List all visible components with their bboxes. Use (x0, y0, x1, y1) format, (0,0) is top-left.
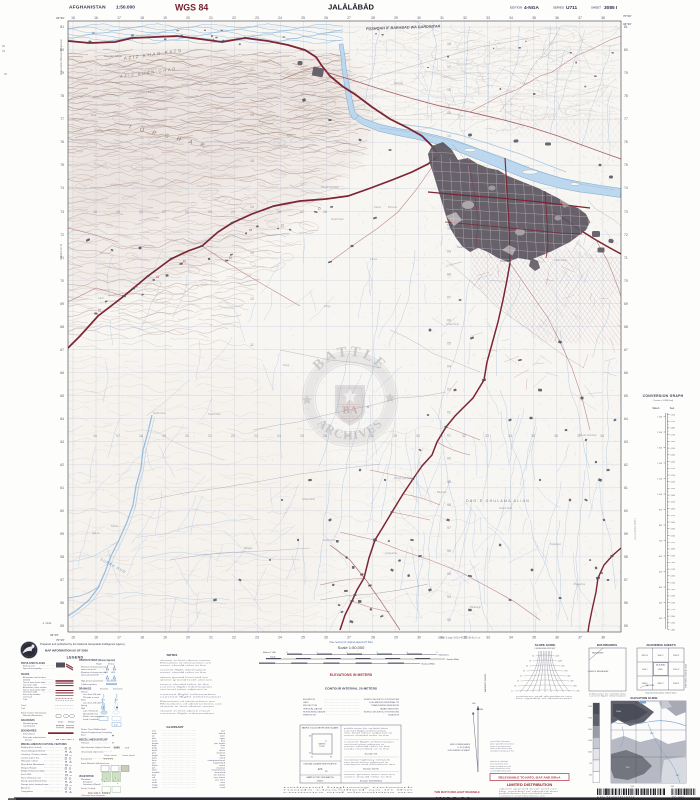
svg-text:CONTOUR INTERVAL 20 METERS: CONTOUR INTERVAL 20 METERS (325, 687, 377, 691)
svg-text:Kama: Kama (111, 524, 118, 528)
svg-text:Stream Disappearing; Dissipati: Stream Disappearing; Dissipating (81, 731, 113, 734)
svg-text:Single: Single (58, 722, 63, 724)
svg-text:65: 65 (309, 753, 311, 755)
svg-text:Kilometers: Kilometers (439, 653, 450, 656)
svg-text:1 400: 1 400 (657, 432, 662, 434)
svg-text:OBSTRUCTIONS (Above Approx): OBSTRUCTIONS (Above Approx) (79, 659, 115, 662)
svg-text:POINT: POINT (319, 746, 325, 748)
svg-text:19: 19 (163, 636, 167, 640)
svg-text:17: 17 (116, 434, 120, 438)
svg-text:25ft wide or more: 25ft wide or more (83, 696, 100, 699)
svg-text:55: 55 (624, 624, 628, 628)
svg-text:GRID: GRID (303, 702, 309, 704)
svg-text:WGS 84: WGS 84 (175, 3, 208, 13)
svg-text:1646: 1646 (616, 711, 622, 713)
svg-text:68: 68 (60, 325, 64, 329)
svg-text:4,500: 4,500 (671, 448, 676, 450)
svg-text:Escarpment: Escarpment (81, 757, 93, 760)
svg-text:Ghani Khel: Ghani Khel (499, 506, 512, 510)
svg-text:80: 80 (624, 48, 628, 52)
svg-text:Flume; Tana; Wildfowl field: Flume; Tana; Wildfowl field (81, 729, 107, 731)
svg-text:1,900: 1,900 (671, 623, 676, 625)
svg-text:ROADS: ROADS (21, 673, 30, 676)
svg-text:4,400: 4,400 (671, 455, 676, 457)
svg-text:Behsud: Behsud (388, 205, 397, 209)
svg-text:1,000 METER UNIVERSAL TR: 1,000 METER UNIVERSAL TR (369, 701, 400, 704)
svg-text:4,000: 4,000 (671, 482, 676, 484)
svg-text:32: 32 (462, 434, 466, 438)
svg-text:Qal eh: Qal eh (92, 531, 100, 535)
svg-text:Sand: Mounds; Stabilized area: Sand: Mounds; Stabilized area (81, 762, 110, 765)
svg-text:2,100: 2,100 (671, 609, 676, 611)
svg-text:First order administrative: First order administrative (23, 736, 47, 739)
svg-text:Tangi: Tangi (283, 363, 290, 367)
svg-text:BOUNDARIES: BOUNDARIES (597, 643, 617, 647)
svg-text:SHEET: SHEET (591, 6, 601, 10)
svg-text:3,000: 3,000 (671, 549, 676, 551)
svg-text:Kariz: Kariz (98, 296, 105, 300)
svg-text:65: 65 (624, 394, 628, 398)
svg-text:38: 38 (600, 434, 604, 438)
svg-text:99: 99 (447, 480, 451, 484)
svg-text:225: 225 (102, 700, 105, 702)
svg-text:37: 37 (578, 636, 582, 640)
svg-text:Fort & Wall: Fort & Wall (21, 773, 32, 776)
svg-text:23: 23 (254, 434, 258, 438)
svg-text:3,700: 3,700 (671, 502, 676, 504)
svg-text:23: 23 (208, 210, 212, 214)
svg-text:24: 24 (277, 434, 281, 438)
svg-text:Nonreliable; Dry: Nonreliable; Dry (83, 712, 99, 715)
svg-text:above ground level and are: above ground level and are (160, 678, 214, 681)
svg-text:MISCELLANEOUS CULTURAL FEATURE: MISCELLANEOUS CULTURAL FEATURES (21, 743, 67, 746)
svg-text:PRINTED BY: PRINTED BY (303, 715, 317, 717)
svg-text:68: 68 (624, 325, 628, 329)
svg-text:BA: BA (342, 405, 357, 417)
svg-text:25: 25 (517, 681, 519, 683)
svg-text:Prepared and published by the: Prepared and published by the National G… (40, 642, 126, 646)
svg-text:29: 29 (394, 636, 398, 640)
svg-text:Tubular pipelines: Tubular pipelines (81, 683, 97, 686)
svg-text:Stream: Stream (81, 690, 88, 693)
svg-text:(See reverse for original aspe: (See reverse for original aspects AT Sit… (329, 641, 373, 644)
svg-text:SAMPLE POINT DESIGNATION: SAMPLE POINT DESIGNATION (306, 776, 334, 779)
svg-text:38: 38 (601, 636, 605, 640)
svg-text:Khush Gunbad: Khush Gunbad (394, 476, 412, 480)
svg-text:Deciduous (Mixed): Deciduous (Mixed) (83, 784, 101, 786)
svg-text:Behsud: Behsud (394, 81, 403, 85)
svg-text:32: 32 (520, 676, 522, 678)
svg-text:Ruins; Historical ruins: Ruins; Historical ruins (21, 776, 41, 779)
svg-text:Storage tanks; landmark area: Storage tanks; landmark area (21, 783, 49, 786)
svg-text:17: 17 (447, 65, 451, 69)
svg-text:23: 23 (255, 636, 259, 640)
svg-text:shown in feet above mean: shown in feet above mean (160, 705, 216, 708)
svg-text:Example: 42SXD926655: Example: 42SXD926655 (360, 781, 383, 783)
svg-text:4,600: 4,600 (671, 441, 676, 443)
svg-text:TRANSVERSE MERCATOR: TRANSVERSE MERCATOR (371, 704, 399, 707)
svg-text:Kariz: Kariz (114, 725, 118, 727)
svg-text:Scrub; Orchard: Scrub; Orchard (81, 787, 96, 790)
svg-text:1 300: 1 300 (657, 447, 662, 449)
svg-text:2: 2 (347, 652, 348, 654)
svg-text:37: 37 (578, 16, 582, 20)
svg-text:38: 38 (601, 16, 605, 20)
svg-text:76: 76 (60, 140, 64, 144)
svg-text:26: 26 (277, 210, 281, 214)
svg-text:15: 15 (447, 111, 451, 115)
svg-text:(1 meter = 3.2808 feet): (1 meter = 3.2808 feet) (653, 399, 674, 402)
svg-text:(465): (465) (111, 672, 116, 674)
svg-text:4,100: 4,100 (671, 475, 676, 477)
svg-text:4,300: 4,300 (671, 461, 676, 463)
svg-text:70: 70 (624, 279, 628, 283)
svg-text:Bagrami: Bagrami (437, 490, 447, 494)
svg-text:62: 62 (624, 463, 628, 467)
svg-text:11: 11 (447, 203, 451, 207)
svg-text:Surkh Dew: Surkh Dew (554, 258, 567, 262)
svg-text:500: 500 (659, 571, 662, 573)
svg-text:Height: Height (96, 662, 102, 665)
svg-text:106%: 106% (558, 661, 563, 663)
svg-text:67: 67 (60, 348, 64, 352)
svg-text:59: 59 (624, 532, 628, 536)
svg-text:MEAN SEA LEVEL: MEAN SEA LEVEL (380, 707, 399, 710)
svg-text:79: 79 (624, 71, 628, 75)
svg-text:Elevation of obstruction top: Elevation of obstruction top (81, 666, 107, 669)
svg-text:25: 25 (300, 434, 304, 438)
svg-text:77: 77 (624, 117, 628, 121)
svg-text:current flight information: current flight information (490, 770, 511, 773)
svg-text:Trail: Trail (21, 707, 26, 710)
svg-text:21: 21 (209, 16, 213, 20)
svg-text:70°30': 70°30' (623, 14, 632, 18)
svg-text:20: 20 (139, 210, 143, 214)
svg-text:FOR CENTER OF SHEET: FOR CENTER OF SHEET (448, 750, 471, 752)
svg-text:30: 30 (417, 16, 421, 20)
svg-text:73: 73 (60, 210, 64, 214)
svg-text:·1646: ·1646 (113, 745, 120, 749)
svg-text:94: 94 (447, 595, 451, 599)
svg-text:Yards: Yards (270, 655, 276, 658)
svg-text:21: 21 (162, 210, 166, 214)
svg-text:35: 35 (531, 434, 535, 438)
svg-text:30: 30 (417, 636, 421, 640)
svg-text:wiyala: wiyala (152, 787, 159, 789)
svg-text:2200: 2200 (588, 706, 592, 708)
svg-text:18: 18 (514, 686, 516, 688)
svg-text:5: 5 (437, 652, 438, 654)
svg-text:21: 21 (208, 434, 212, 438)
svg-text:Lungad Hilsa: Lungad Hilsa (104, 54, 122, 58)
svg-text:canal: canal (220, 787, 226, 789)
svg-text:57: 57 (60, 578, 64, 582)
svg-text:18: 18 (140, 16, 144, 20)
svg-text:18: 18 (447, 42, 451, 46)
svg-text:1:50.000: 1:50.000 (116, 5, 135, 11)
svg-text:Example: 92X: Example: 92X (365, 754, 378, 756)
svg-text:RELEASABLE TO NATO, ISAF AND G: RELEASABLE TO NATO, ISAF AND GIRoA (498, 776, 561, 780)
svg-text:Mosque; Masjed: Mosque; Masjed (21, 767, 37, 769)
svg-text:59: 59 (60, 532, 64, 536)
svg-text:3085 II: 3085 II (658, 683, 664, 685)
svg-text:0° 20' (6 MILS): 0° 20' (6 MILS) (457, 747, 470, 749)
svg-text:2,200: 2,200 (671, 603, 676, 605)
svg-text:Route marker: International: Route marker: International (21, 712, 47, 715)
svg-text:71: 71 (624, 256, 628, 260)
svg-text:64: 64 (624, 417, 628, 421)
svg-text:Lake / Reservoir: Lake / Reservoir (83, 710, 98, 713)
svg-text:Scale 1:50,000: Scale 1:50,000 (338, 645, 365, 650)
svg-text:32: 32 (463, 16, 467, 20)
svg-text:current flight information: current flight information (589, 695, 626, 698)
svg-text:3084 I: 3084 I (642, 669, 648, 671)
svg-text:PROJECTION: PROJECTION (303, 705, 318, 707)
svg-text:16: 16 (250, 113, 254, 117)
svg-text:Khush Gunbad: Khush Gunbad (321, 185, 339, 189)
svg-text:03: 03 (447, 388, 451, 392)
svg-text:Surkh Dew: Surkh Dew (323, 538, 336, 542)
svg-text:15: 15 (71, 16, 75, 20)
svg-text:95: 95 (447, 572, 451, 576)
svg-text:Chaparhar: Chaparhar (385, 551, 397, 555)
svg-text:VEGETATION: VEGETATION (79, 775, 94, 778)
svg-text:Surkh Dew: Surkh Dew (208, 412, 221, 416)
svg-text:400: 400 (589, 774, 592, 776)
svg-text:63: 63 (624, 440, 628, 444)
svg-text:34°15': 34°15' (50, 633, 59, 637)
svg-text:63: 63 (60, 440, 64, 444)
svg-text:sea level when adjacent to: sea level when adjacent to (160, 688, 208, 691)
svg-text:75: 75 (60, 163, 64, 167)
svg-text:THIS MAP IS RED-LIGHT READABLE: THIS MAP IS RED-LIGHT READABLE (434, 790, 480, 794)
svg-text:27: 27 (347, 636, 351, 640)
svg-text:61: 61 (60, 486, 64, 490)
svg-text:2,800: 2,800 (671, 562, 676, 564)
svg-text:Cemetery: Christian; Islamic: Cemetery: Christian; Islamic (21, 753, 47, 756)
svg-text:31: 31 (439, 434, 443, 438)
svg-text:92: 92 (311, 757, 313, 759)
svg-text:DAG-E GHULAMA ALIAN: DAG-E GHULAMA ALIAN (466, 499, 530, 503)
svg-text:56: 56 (60, 601, 64, 605)
svg-text:Tangi: Tangi (105, 62, 112, 66)
svg-text:02: 02 (447, 411, 451, 415)
svg-text:3086 II: 3086 II (658, 655, 664, 657)
svg-text:300: 300 (659, 602, 662, 604)
svg-text:66: 66 (309, 736, 311, 738)
svg-text:PAKISTAN: PAKISTAN (646, 684, 655, 687)
svg-text:42S: 42S (318, 767, 323, 771)
svg-text:72: 72 (60, 233, 64, 237)
svg-text:1365: 1365 (104, 672, 108, 674)
svg-text:Statute Miles: Statute Miles (447, 658, 461, 661)
svg-text:GN: GN (472, 703, 476, 705)
svg-text:36: 36 (555, 636, 559, 640)
svg-text:08: 08 (447, 272, 451, 276)
svg-text:15: 15 (71, 636, 75, 640)
svg-text:18: 18 (139, 434, 143, 438)
svg-text:78: 78 (60, 94, 64, 98)
svg-text:2,700: 2,700 (671, 569, 676, 571)
svg-text:65: 65 (60, 394, 64, 398)
svg-text:Nautical Miles: Nautical Miles (422, 662, 437, 665)
svg-text:35: 35 (532, 16, 536, 20)
svg-text:16: 16 (447, 88, 451, 92)
svg-text:98: 98 (447, 503, 451, 507)
svg-text:2,600: 2,600 (671, 576, 676, 578)
svg-text:31: 31 (2, 49, 6, 53)
svg-text:Vertical: Vertical (108, 662, 115, 665)
svg-text:3,300: 3,300 (671, 529, 676, 531)
svg-text:33: 33 (486, 16, 490, 20)
svg-text:standard category of the: standard category of the (490, 750, 514, 753)
svg-text:Map 1501 Ed boundaries 1 Note: Map 1501 Ed boundaries 1 Note 1 blocks (646, 692, 677, 695)
svg-text:18: 18 (93, 210, 97, 214)
svg-text:70°15': 70°15' (56, 638, 65, 642)
svg-text:ELEVATION: ELEVATION (303, 698, 315, 701)
svg-text:WORLD GEODETIC SYSTEM 1984: WORLD GEODETIC SYSTEM 1984 (364, 711, 400, 713)
svg-text:Apiculture: Apiculture (21, 786, 31, 789)
svg-text:06: 06 (447, 318, 451, 322)
svg-text:36: 36 (554, 434, 558, 438)
svg-text:29: 29 (394, 16, 398, 20)
svg-text:26: 26 (324, 636, 328, 640)
svg-text:69: 69 (60, 302, 64, 306)
svg-text:22: 22 (231, 434, 235, 438)
svg-text:30: 30 (416, 434, 420, 438)
svg-text:17: 17 (117, 16, 121, 20)
svg-text:DEGREES AND PERCENT: DEGREES AND PERCENT (535, 647, 556, 650)
svg-text:3,500: 3,500 (671, 515, 676, 517)
svg-text:Kariz: Kariz (81, 734, 86, 737)
svg-text:69: 69 (624, 302, 628, 306)
svg-text:Church (Mosque) (Shrine): Church (Mosque) (Shrine) (21, 750, 45, 753)
svg-text:Built-up area: Built-up area (23, 665, 36, 668)
svg-text:Khush Gunbad: Khush Gunbad (579, 433, 597, 437)
svg-text:Trail: Trail (23, 698, 28, 701)
svg-text:Bela: Bela (91, 113, 97, 117)
svg-text:1 200: 1 200 (657, 463, 662, 465)
svg-text:12: 12 (250, 297, 254, 301)
svg-text:17: 17 (117, 636, 121, 640)
svg-text:20: 20 (186, 636, 190, 640)
svg-text:NANGARHAR: NANGARHAR (592, 652, 604, 655)
svg-text:Contour interval: Contour interval (104, 754, 117, 757)
svg-text:ADJOINING SHEETS: ADJOINING SHEETS (646, 643, 676, 647)
svg-text:00: 00 (447, 457, 451, 461)
svg-text:700: 700 (659, 540, 662, 542)
svg-text:Locator airport: Taxi: Locator airport: Taxi (21, 756, 40, 759)
svg-text:800: 800 (659, 525, 662, 527)
svg-text:VILAYAT E NANGARHAR: VILAYAT E NANGARHAR (588, 670, 609, 673)
svg-text:2,000: 2,000 (671, 616, 676, 618)
svg-text:Meters: Meters (652, 407, 660, 410)
svg-text:Surkh Dew: Surkh Dew (331, 217, 344, 221)
svg-text:11: 11 (511, 691, 513, 693)
svg-text:contours and elevations are: contours and elevations are (499, 794, 547, 797)
svg-text:25: 25 (254, 210, 258, 214)
svg-text:BOUNDARIES: BOUNDARIES (21, 730, 37, 733)
svg-text:58: 58 (60, 555, 64, 559)
svg-text:1: 1 (317, 652, 318, 654)
svg-text:4,700: 4,700 (671, 435, 676, 437)
svg-text:46: 46 (526, 666, 528, 668)
svg-text:NOTES: NOTES (167, 653, 178, 657)
svg-text:67: 67 (624, 348, 628, 352)
svg-text:34°30': 34°30' (56, 16, 65, 20)
svg-text:High tension powerlines: High tension powerlines (81, 680, 103, 683)
svg-text:Feet: Feet (670, 407, 675, 410)
svg-text:Less than 25ft wide: Less than 25ft wide (83, 693, 102, 696)
svg-text:17: 17 (250, 67, 254, 71)
svg-text:39: 39 (523, 671, 525, 673)
svg-text:1000: 1000 (588, 752, 592, 754)
svg-text:93: 93 (447, 618, 451, 622)
svg-text:Balabagh: Balabagh (470, 605, 482, 609)
svg-text:current flight information: current flight information (160, 695, 223, 698)
svg-text:roads classified as in the: roads classified as in the (344, 747, 391, 750)
svg-text:3,200: 3,200 (671, 535, 676, 537)
svg-text:Cultivated area Vineyards: Cultivated area Vineyards (81, 794, 105, 797)
svg-text:3,400: 3,400 (671, 522, 676, 524)
svg-text:3185 III: 3185 III (673, 683, 680, 685)
svg-text:AFGHANISTAN: AFGHANISTAN (69, 5, 106, 11)
svg-text:division: division (25, 739, 33, 741)
svg-text:JALĀLĀBĀD 3085 I: JALĀLĀBĀD 3085 I (634, 518, 637, 540)
svg-text:Contour interval: Contour interval (122, 754, 135, 757)
svg-text:14: 14 (250, 205, 254, 209)
svg-text:27: 27 (347, 16, 351, 20)
svg-text:Kama: Kama (148, 90, 155, 94)
svg-text:60: 60 (624, 509, 628, 513)
svg-text:Building (Pub. School): Building (Pub. School) (21, 747, 42, 749)
svg-text:74: 74 (624, 186, 628, 190)
svg-text:13: 13 (447, 157, 451, 161)
svg-text:MAP INFORMATION AS OF 2008: MAP INFORMATION AS OF 2008 (45, 649, 88, 653)
svg-text:400: 400 (659, 587, 662, 589)
svg-text:SERIES: SERIES (553, 6, 564, 10)
svg-text:36: 36 (555, 16, 559, 20)
svg-text:current flight information: current flight information (160, 712, 216, 715)
svg-text:58: 58 (624, 555, 628, 559)
svg-text:-1 1411: -1 1411 (42, 621, 52, 625)
svg-text:3085 I: 3085 I (604, 5, 618, 11)
svg-text:Surkh Dew: Surkh Dew (153, 411, 166, 415)
svg-text:19: 19 (162, 434, 166, 438)
svg-text:Multiple: Multiple (68, 721, 75, 724)
svg-text:SAMPLE 1:50,000 METER GRID SQU: SAMPLE 1:50,000 METER GRID SQUARE (302, 727, 339, 730)
svg-text:2,400: 2,400 (671, 589, 676, 591)
svg-text:81: 81 (60, 25, 64, 29)
svg-text:12: 12 (447, 180, 451, 184)
svg-text:Balabagh: Balabagh (457, 245, 469, 249)
svg-text:25: 25 (301, 16, 305, 20)
svg-text:22: 22 (232, 16, 236, 20)
svg-text:20: 20 (185, 434, 189, 438)
svg-text:Meters 1 000: Meters 1 000 (263, 651, 277, 654)
svg-text:Kama: Kama (370, 257, 377, 261)
svg-text:3: 3 (377, 652, 378, 654)
svg-text:Intermittent: Intermittent (113, 688, 123, 691)
svg-text:96: 96 (447, 549, 451, 553)
svg-text:93: 93 (330, 757, 332, 759)
svg-text:Sultanpur: Sultanpur (550, 542, 561, 546)
svg-text:19: 19 (163, 16, 167, 20)
svg-text:21: 21 (209, 636, 213, 640)
svg-text:Perennial: Perennial (100, 688, 109, 691)
svg-text:CONVERSION GRAPH: CONVERSION GRAPH (643, 394, 684, 398)
svg-text:73: 73 (624, 210, 628, 214)
